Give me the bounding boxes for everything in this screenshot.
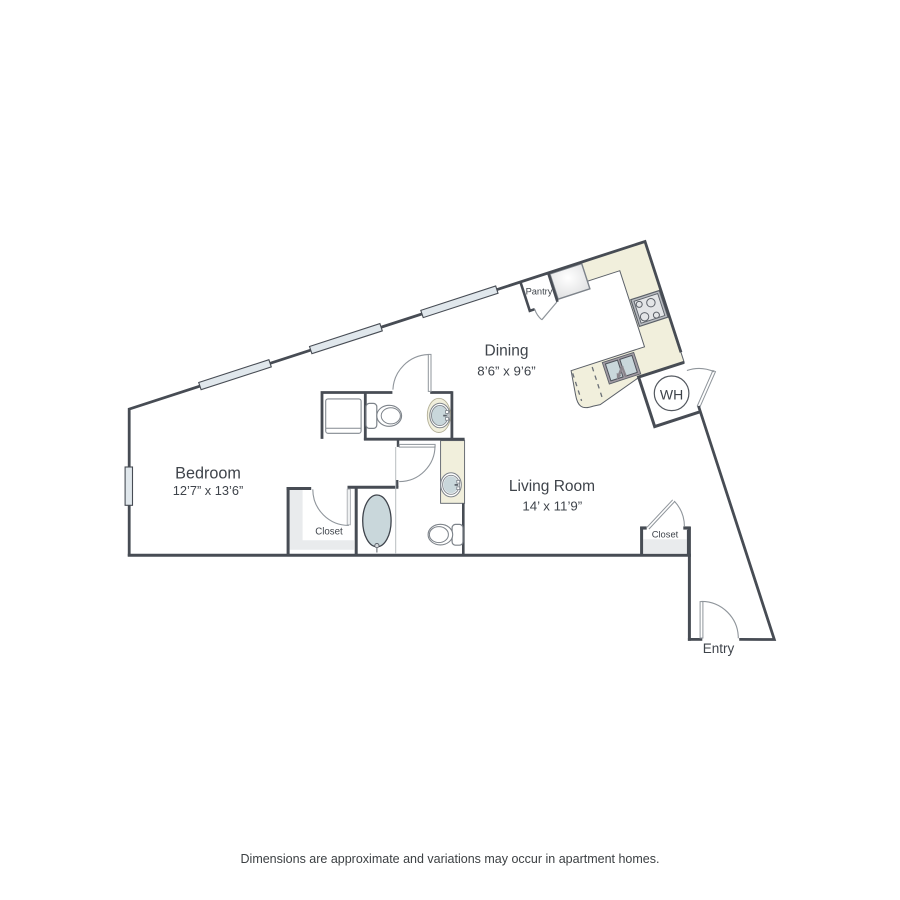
svg-text:12’7” x 13’6”: 12’7” x 13’6” — [173, 483, 243, 498]
svg-text:8’6” x 9’6”: 8’6” x 9’6” — [477, 363, 535, 378]
svg-text:Closet: Closet — [652, 528, 679, 539]
svg-text:Closet: Closet — [315, 526, 343, 537]
svg-text:Entry: Entry — [703, 641, 735, 656]
svg-text:Living Room: Living Room — [509, 478, 595, 495]
svg-text:Bedroom: Bedroom — [175, 464, 241, 482]
svg-text:WH: WH — [660, 387, 683, 403]
svg-text:Pantry: Pantry — [526, 287, 553, 297]
svg-text:14’ x 11’9”: 14’ x 11’9” — [522, 498, 582, 513]
svg-text:Dining: Dining — [485, 343, 529, 360]
